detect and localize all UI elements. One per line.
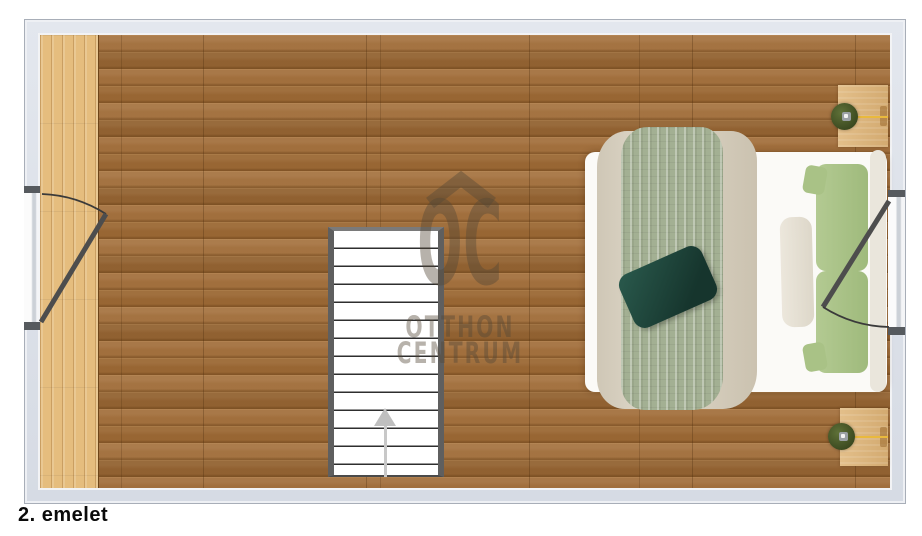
floor-plan-canvas: OC OTTHON CENTRUM 2. emelet (0, 0, 922, 536)
floor-label: 2. emelet (18, 504, 108, 527)
bed-pillow-cream (780, 217, 815, 328)
window-frame-bar (24, 186, 40, 193)
table-lamp-icon (831, 103, 858, 130)
bed-headboard-strip (870, 150, 886, 392)
window-opening-right (888, 197, 905, 327)
bed-pillow-green-bottom (816, 271, 868, 373)
window-frame-bar (888, 190, 905, 197)
bed-pillow-green-top (816, 164, 868, 271)
window-opening-left (24, 193, 40, 322)
table-lamp-icon (828, 423, 855, 450)
window-frame-bar (888, 327, 905, 335)
lamp-bulb (839, 432, 848, 441)
stair-direction-arrow-shaft (384, 426, 387, 477)
pillow-corner (802, 164, 829, 195)
pillow-corner (802, 341, 829, 372)
window-frame-bar (24, 322, 40, 330)
up-arrow-icon (374, 408, 396, 426)
lamp-bulb (842, 112, 851, 121)
wood-floor-accent-strip (40, 35, 99, 488)
